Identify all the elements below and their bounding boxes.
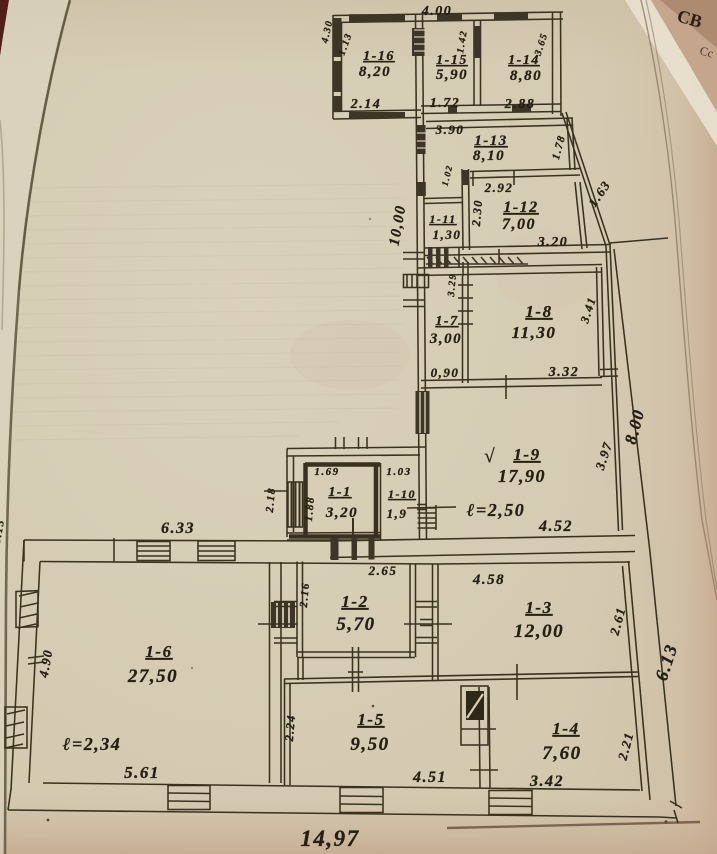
svg-text:2.30: 2.30 bbox=[469, 199, 485, 228]
svg-text:1-16: 1-16 bbox=[363, 49, 395, 64]
svg-text:2.16: 2.16 bbox=[298, 582, 312, 609]
svg-text:5,70: 5,70 bbox=[336, 614, 375, 635]
svg-text:2.14: 2.14 bbox=[350, 97, 382, 112]
svg-text:14,97: 14,97 bbox=[300, 826, 359, 851]
svg-text:4.52: 4.52 bbox=[538, 518, 573, 535]
svg-text:2.92: 2.92 bbox=[484, 180, 514, 195]
svg-text:8,80: 8,80 bbox=[510, 68, 542, 84]
svg-text:6.33: 6.33 bbox=[161, 520, 195, 537]
svg-text:3.32: 3.32 bbox=[548, 365, 580, 380]
svg-text:2.18: 2.18 bbox=[264, 487, 278, 514]
svg-text:ℓ=2,50: ℓ=2,50 bbox=[467, 500, 525, 520]
svg-text:1-10: 1-10 bbox=[388, 487, 416, 501]
svg-text:3,00: 3,00 bbox=[429, 331, 462, 347]
svg-text:1-7: 1-7 bbox=[435, 314, 458, 329]
svg-text:11,30: 11,30 bbox=[512, 323, 557, 342]
svg-text:1-1: 1-1 bbox=[328, 485, 351, 500]
svg-text:1.72: 1.72 bbox=[430, 96, 461, 111]
svg-text:1-3: 1-3 bbox=[525, 598, 552, 617]
svg-text:2.65: 2.65 bbox=[368, 563, 398, 578]
svg-text:2.24: 2.24 bbox=[282, 714, 298, 743]
svg-text:5.61: 5.61 bbox=[124, 763, 160, 782]
svg-text:3.20: 3.20 bbox=[537, 235, 569, 250]
svg-text:1-9: 1-9 bbox=[513, 445, 540, 464]
svg-text:27,50: 27,50 bbox=[127, 666, 178, 687]
svg-text:3.90: 3.90 bbox=[435, 122, 465, 137]
svg-text:1.88: 1.88 bbox=[303, 496, 317, 522]
svg-text:4.51: 4.51 bbox=[412, 769, 447, 786]
svg-text:1-2: 1-2 bbox=[341, 592, 368, 611]
svg-text:1-13: 1-13 bbox=[474, 133, 508, 149]
svg-text:1-6: 1-6 bbox=[145, 642, 172, 661]
svg-text:7,60: 7,60 bbox=[542, 743, 581, 764]
svg-text:8,20: 8,20 bbox=[359, 64, 391, 80]
svg-text:1-8: 1-8 bbox=[525, 302, 552, 321]
svg-text:1-15: 1-15 bbox=[436, 53, 468, 68]
svg-text:12,00: 12,00 bbox=[514, 621, 564, 642]
svg-text:1-11: 1-11 bbox=[429, 212, 456, 226]
svg-text:0,90: 0,90 bbox=[431, 365, 460, 380]
svg-text:5,90: 5,90 bbox=[436, 67, 468, 83]
svg-text:1,30: 1,30 bbox=[433, 227, 462, 242]
svg-text:1.69: 1.69 bbox=[314, 466, 339, 478]
svg-text:3.29: 3.29 bbox=[446, 273, 459, 298]
svg-text:3,20: 3,20 bbox=[325, 505, 358, 521]
svg-text:1-12: 1-12 bbox=[503, 199, 538, 216]
svg-text:2.88: 2.88 bbox=[504, 97, 536, 112]
svg-text:1,9: 1,9 bbox=[387, 506, 408, 521]
svg-text:1-5: 1-5 bbox=[357, 710, 384, 729]
svg-text:√: √ bbox=[484, 446, 496, 467]
svg-text:1-4: 1-4 bbox=[552, 719, 579, 738]
svg-text:ℓ=2,34: ℓ=2,34 bbox=[63, 734, 121, 754]
svg-text:1.03: 1.03 bbox=[386, 466, 411, 478]
svg-text:8,10: 8,10 bbox=[473, 148, 505, 164]
svg-text:9,50: 9,50 bbox=[350, 734, 389, 755]
svg-text:17,90: 17,90 bbox=[498, 466, 546, 486]
svg-text:4.00: 4.00 bbox=[421, 4, 453, 19]
svg-text:4.58: 4.58 bbox=[472, 572, 505, 588]
svg-text:7,00: 7,00 bbox=[502, 216, 536, 233]
svg-text:3.42: 3.42 bbox=[529, 773, 564, 790]
